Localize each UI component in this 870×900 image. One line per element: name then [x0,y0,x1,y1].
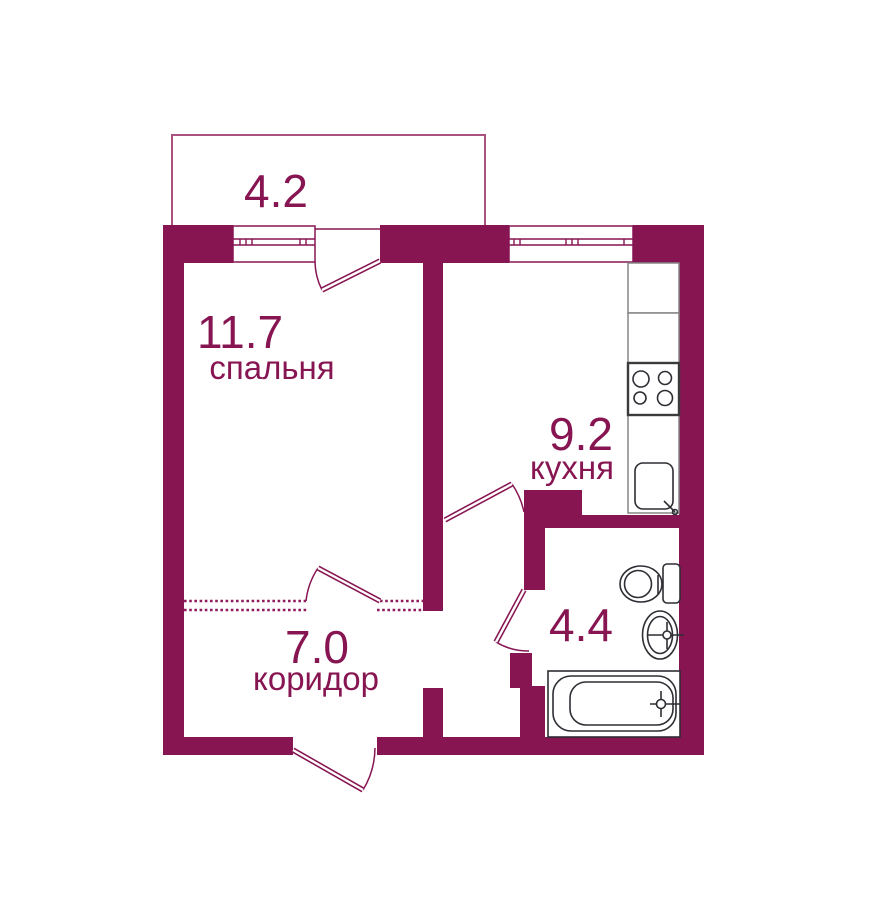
door-leaf [293,750,363,790]
floor-plan-canvas: 4.2 11.7 спальня 9.2 кухня 7.0 коридор 4… [0,0,870,900]
wall-divider-upper [423,263,443,611]
counter-cabinet [628,313,679,363]
wall-top-pier-middle [380,225,509,263]
door-swing-arc [496,642,529,651]
balcony-door [315,261,380,290]
balcony-outline [172,135,485,225]
toilet-tank [663,564,680,603]
entrance-door [293,748,375,790]
wall-divider-lower [423,688,443,737]
balcony-area-label: 4.2 [244,165,308,217]
bedroom-window [233,226,315,262]
door-leaf [445,484,512,520]
stove-frame [628,363,679,415]
balcony [172,135,485,229]
door-swing-arc [363,748,375,790]
bathtub-icon [548,671,681,737]
wall-left [163,225,184,755]
door-leaf [322,261,380,290]
kitchen-window-frame [509,226,633,262]
stove-icon [628,363,679,415]
bathtub-faucet-knob [657,700,666,709]
wall-bathroom-left-lower [520,686,545,737]
bedroom-corridor-dashed-boundary [184,601,423,610]
door-swing-arc [512,484,524,512]
door-leaf [496,590,524,642]
wall-bathroom-top-left-block [524,490,582,528]
kitchen-window [509,226,633,262]
toilet-icon [620,564,680,603]
wall-bottom-left [163,737,293,755]
corridor-name-label: коридор [253,660,379,697]
door-leaf [318,568,380,601]
bathroom-door [496,590,529,651]
door-swing-arc [306,568,318,601]
wall-bathroom-top-right [582,515,679,528]
kitchen-sink-basin [635,463,673,509]
bedroom-door [306,568,380,601]
wall-bathroom-left-upper [524,528,545,590]
kitchen-sink-icon [635,463,678,515]
bathroom-sink-faucet-knob [663,631,671,639]
bathroom-area-label: 4.4 [549,599,613,651]
wall-bathroom-left-step [510,653,532,688]
kitchen-name-label: кухня [530,449,614,486]
kitchen-door [445,484,524,520]
wall-bottom-right [377,737,704,755]
floor-plan: 4.2 11.7 спальня 9.2 кухня 7.0 коридор 4… [0,0,870,900]
wall-right [679,225,704,755]
bedroom-name-label: спальня [209,349,334,386]
door-swing-arc [315,262,322,290]
counter-cabinet [628,263,679,313]
bathroom-sink-icon [643,611,685,659]
